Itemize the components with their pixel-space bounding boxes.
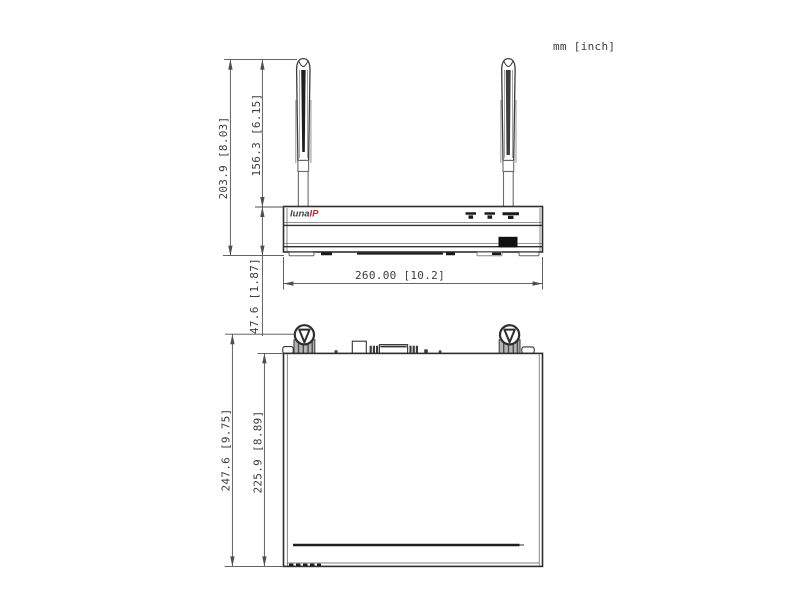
antenna-right <box>501 59 516 208</box>
antenna-stem <box>504 172 514 208</box>
foot <box>519 252 539 256</box>
front-dimensions <box>223 60 543 336</box>
dim-label-overall-height: 203.9 [8.03] <box>217 116 230 199</box>
rear-bump-right <box>522 347 534 353</box>
dim-label-width: 260.00 [10.2] <box>355 269 445 282</box>
usb-port <box>499 237 518 248</box>
antenna-stem <box>298 172 308 208</box>
top-chassis <box>284 353 543 566</box>
antenna-hinge <box>503 161 514 172</box>
antenna-hinge <box>298 161 309 172</box>
units-label: mm [inch] <box>553 40 615 53</box>
front-view: lunaIP <box>284 59 543 256</box>
front-feet <box>289 252 539 256</box>
brand-logo: lunaIP <box>290 209 319 220</box>
antenna-knob-right <box>499 325 520 353</box>
dim-label-antenna-height: 156.3 [6.15] <box>250 93 263 176</box>
antenna-core <box>506 70 511 155</box>
dim-label-overall-depth: 247.6 [9.75] <box>220 408 233 491</box>
foot <box>289 252 314 256</box>
antenna-knob-left <box>294 325 315 353</box>
top-view <box>283 325 543 566</box>
rear-bump-left <box>283 347 293 354</box>
base-vent-marks <box>321 252 501 255</box>
antenna-left <box>296 59 311 208</box>
brand-logo-ip: IP <box>310 209 320 220</box>
dim-label-body-depth: 225.9 [8.89] <box>252 410 265 493</box>
brand-logo-luna: luna <box>290 209 310 220</box>
drawing-svg: lunaIP 203.9 [8.03] 156.3 [6.15] 47.6 [1… <box>0 0 800 600</box>
dim-label-body-height: 47.6 [1.87] <box>248 258 261 334</box>
dimensional-drawing: lunaIP 203.9 [8.03] 156.3 [6.15] 47.6 [1… <box>0 0 800 600</box>
rear-connector-block <box>352 341 366 353</box>
